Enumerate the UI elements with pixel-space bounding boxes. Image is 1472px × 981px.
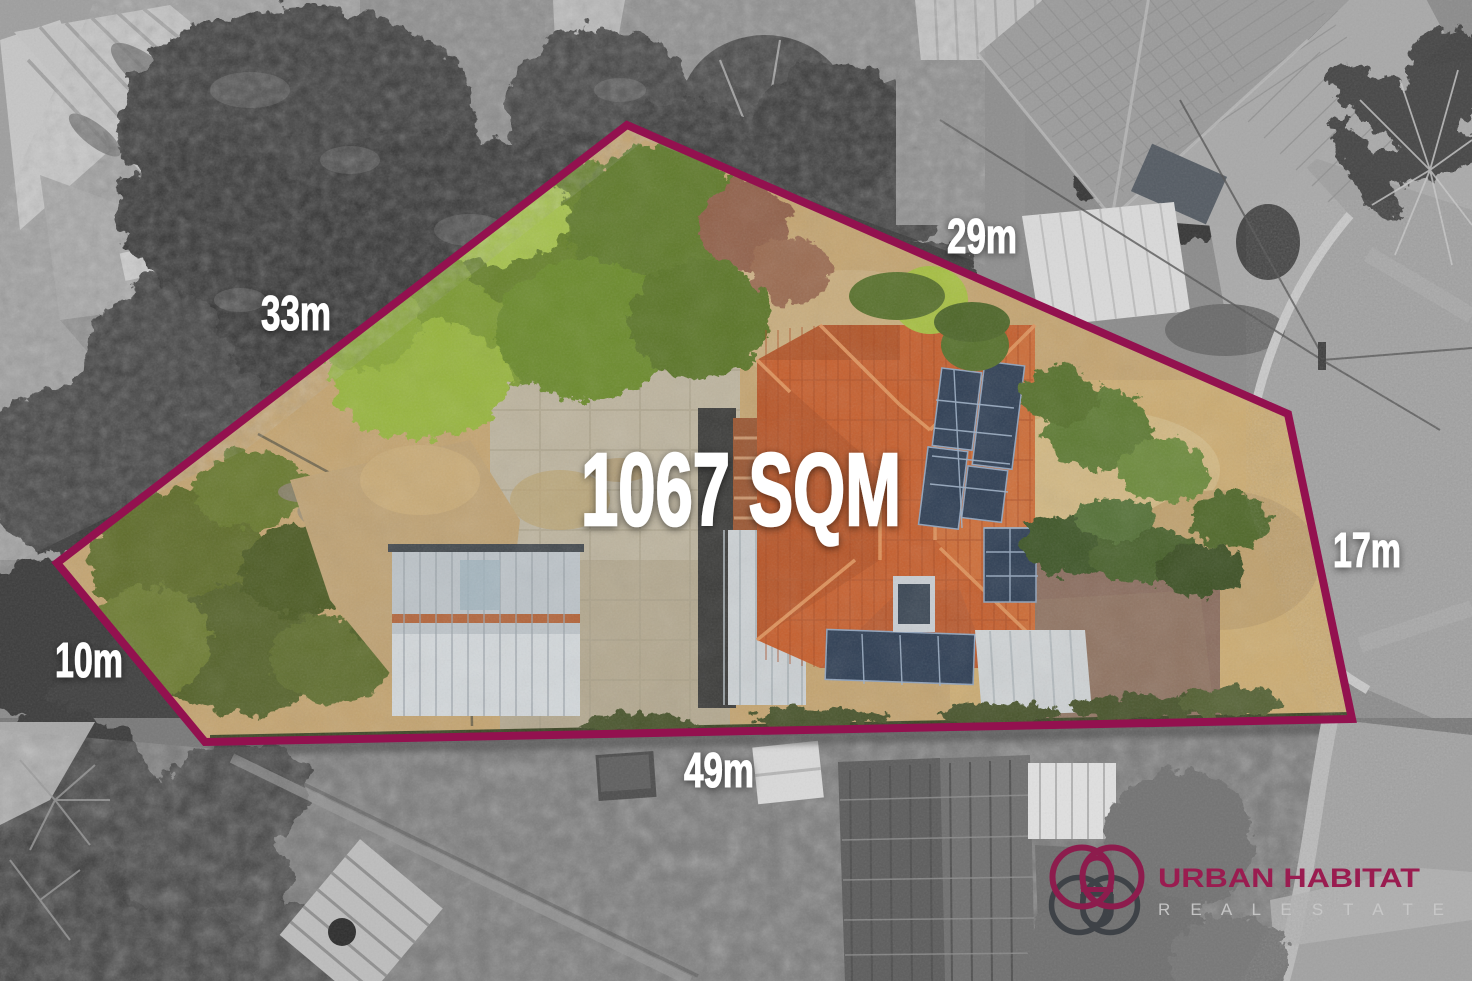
svg-text:1067 SQM: 1067 SQM: [581, 432, 901, 547]
svg-text:33m: 33m: [261, 287, 331, 341]
svg-text:29m: 29m: [947, 210, 1017, 264]
svg-text:49m: 49m: [684, 744, 754, 798]
svg-text:10m: 10m: [55, 634, 123, 688]
svg-text:URBAN HABITAT: URBAN HABITAT: [1158, 863, 1421, 893]
svg-text:17m: 17m: [1333, 524, 1401, 578]
